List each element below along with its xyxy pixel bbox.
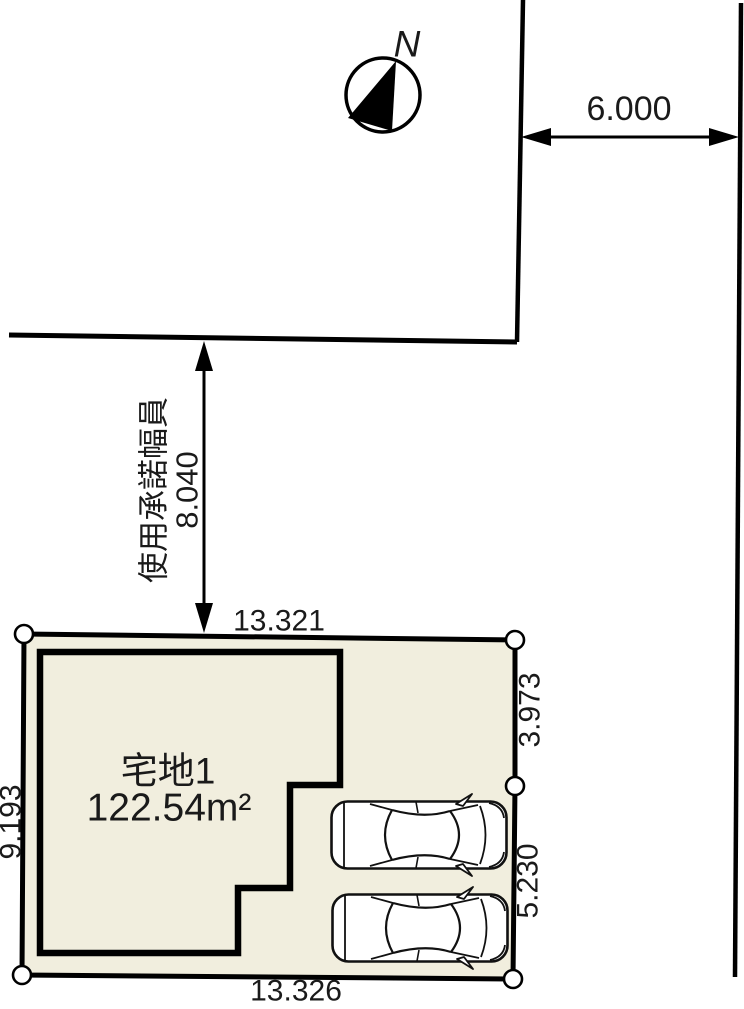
car-2 (333, 887, 508, 969)
boundary-marker-bottom-right (504, 970, 522, 988)
lot-dimension-right-lower: 5.230 (512, 843, 544, 918)
easement-dimension-label: 使用承諾幅員 8.040 (138, 397, 203, 583)
boundary-marker-right-mid (506, 777, 524, 795)
boundary-marker-top-left (15, 625, 33, 643)
road-width-dimension-arrow (521, 128, 739, 146)
easement-value: 8.040 (171, 397, 204, 583)
road-edge-upper-left (517, 0, 523, 342)
car-1 (332, 794, 507, 876)
lot-dimension-top: 13.321 (233, 605, 325, 637)
easement-label: 使用承諾幅員 (138, 397, 171, 583)
boundary-marker-bottom-left (13, 966, 31, 984)
lot-dimension-bottom: 13.326 (250, 975, 342, 1007)
road-edge-horizontal (9, 335, 517, 342)
road-edge-right (735, 3, 741, 977)
north-compass-icon (346, 58, 420, 132)
lot-dimension-left: 9.193 (0, 784, 27, 859)
site-plan: N 6.000 使用承諾幅員 8.040 13.321 13.326 9.193… (0, 0, 744, 1009)
lot-dimension-right-upper: 3.973 (514, 672, 546, 747)
road-width-label: 6.000 (586, 92, 671, 128)
boundary-marker-top-right (506, 631, 524, 649)
lot-area: 122.54m² (87, 789, 252, 830)
site-plan-drawing (0, 0, 744, 1009)
north-label: N (394, 26, 421, 65)
